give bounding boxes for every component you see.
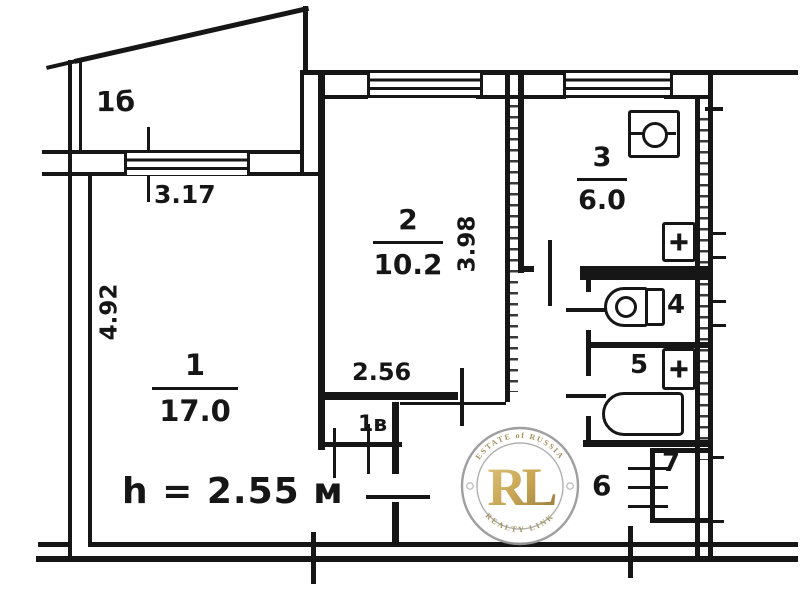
wall-junction-tick [311, 532, 316, 584]
door-mark [366, 495, 430, 499]
wall-segment [400, 402, 506, 405]
wall-segment [300, 70, 304, 176]
closet-1v-label: 1в [358, 414, 387, 436]
wall-segment [650, 518, 710, 523]
hallway-label: 6 [592, 472, 611, 500]
balcony-width-dim: 3.17 [154, 182, 216, 207]
wall-hatch [699, 118, 709, 460]
bathroom-label: 5 [630, 352, 648, 378]
toilet-icon [604, 287, 648, 327]
wall-segment [46, 59, 77, 70]
wall-tick [710, 520, 724, 523]
wall-segment [42, 150, 124, 154]
door-mark [628, 505, 668, 508]
door-mark [460, 368, 464, 426]
room2-width-dim: 2.56 [352, 360, 411, 384]
wall-segment [518, 266, 534, 272]
wall-segment [318, 392, 458, 400]
wall-segment [392, 402, 399, 474]
dimension-tick [147, 176, 150, 202]
room2-area: 10.2 [373, 244, 442, 281]
kitchen-window [563, 70, 673, 98]
door-mark [628, 486, 668, 489]
floor-plan: 1б 3.17 4.92 1 17.0 h = 2.55 м 2 10.2 3.… [0, 0, 800, 600]
kitchen-area: 6.0 [578, 181, 626, 216]
wall-segment [318, 442, 402, 447]
kitchen-sink-icon [628, 110, 680, 158]
wall-tick [710, 300, 726, 303]
ceiling-height-note: h = 2.55 м [122, 474, 344, 510]
washbasin-icon [662, 348, 696, 390]
wall-segment [303, 6, 308, 74]
door-mark [566, 394, 606, 398]
wall-segment [583, 440, 712, 447]
wall-segment [79, 62, 82, 150]
watermark-stamp: ESTATE of RUSSIA REALTY LINK RL [459, 425, 581, 547]
watermark-monogram: RL [487, 457, 555, 517]
door-mark [566, 308, 606, 312]
kitchen-number: 3 [577, 142, 627, 181]
room1-area: 17.0 [159, 390, 231, 428]
sink-drain-icon [642, 122, 668, 148]
watermark-dot-right [567, 483, 573, 489]
room1-depth-dim: 4.92 [92, 268, 126, 356]
watermark-dot-left [467, 483, 473, 489]
room2-label-block: 2 10.2 [358, 203, 458, 281]
wall-segment [392, 502, 399, 543]
wall-hatch [508, 105, 518, 392]
stove-icon [662, 222, 696, 262]
wall-segment [36, 556, 798, 562]
wall-tick [710, 456, 724, 459]
wall-segment [38, 542, 68, 547]
wall-segment [586, 330, 591, 376]
wall-tick [710, 256, 726, 259]
wall-segment [244, 150, 304, 154]
room1-label-block: 1 17.0 [140, 348, 250, 428]
wall-tick [705, 107, 723, 111]
room1-number: 1 [152, 348, 238, 390]
balcony-window [124, 150, 250, 175]
wall-segment [580, 266, 712, 280]
entry-door-mark [628, 526, 633, 578]
toilet-tank-icon [645, 288, 665, 326]
room2-number: 2 [373, 203, 443, 244]
kitchen-label-block: 3 6.0 [570, 142, 634, 216]
dimension-tick [147, 127, 150, 150]
door-mark [548, 240, 552, 306]
wc-label: 4 [667, 292, 685, 318]
room2-window [367, 70, 483, 98]
wall-segment [88, 172, 92, 543]
wall-segment [322, 95, 368, 99]
wall-segment [74, 6, 309, 64]
wall-tick [710, 324, 726, 327]
balcony-label: 1б [96, 88, 135, 116]
wall-tick [710, 232, 726, 235]
toilet-bowl-icon [615, 296, 637, 318]
wall-segment [88, 542, 798, 547]
closet-7-label: 7 [662, 450, 680, 476]
room2-depth-dim: 3.98 [446, 198, 488, 290]
wall-segment [68, 60, 72, 560]
wall-segment [518, 70, 524, 273]
bathtub-icon [602, 392, 684, 436]
wall-segment [586, 270, 591, 292]
